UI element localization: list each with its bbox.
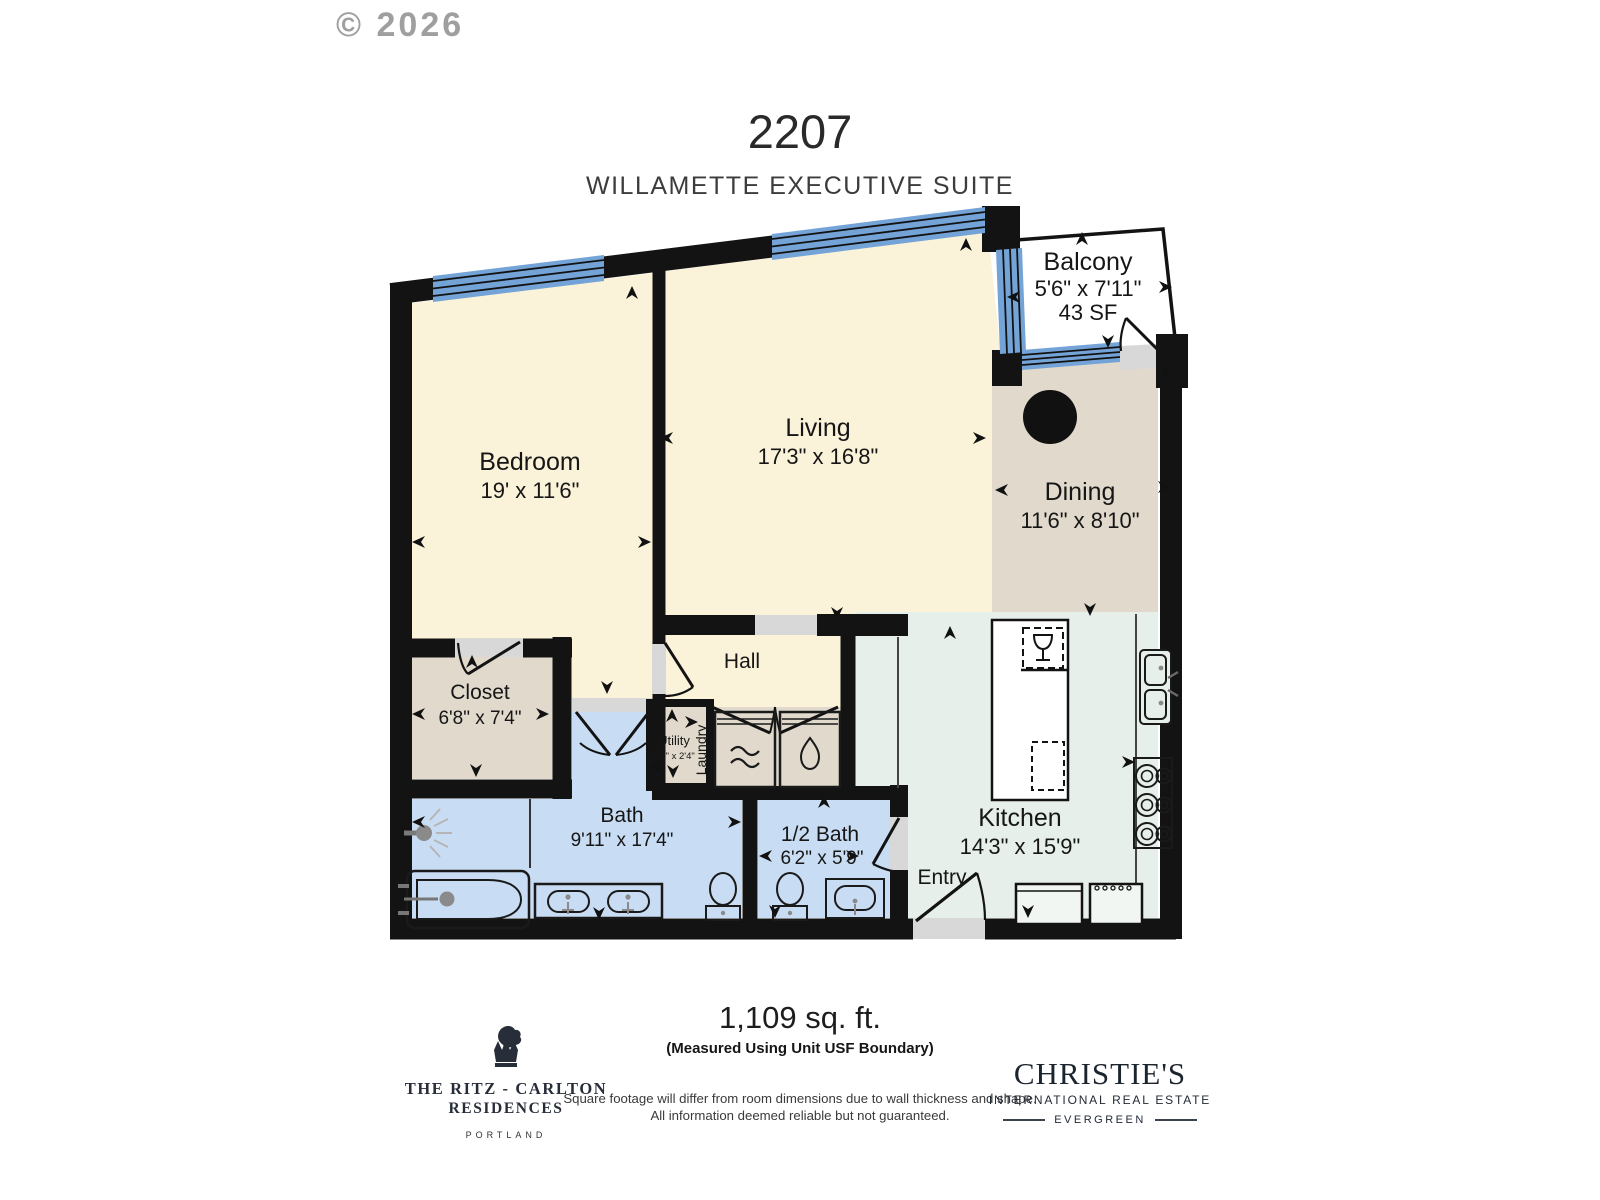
dining-dims: 11'6" x 8'10"	[1020, 508, 1139, 533]
utility-dims: 3'1" x 2'4"	[653, 751, 695, 762]
kitchen-dims: 14'3" x 15'9"	[960, 834, 1081, 859]
half-bath-label: 1/2 Bath	[781, 823, 859, 846]
living-right-window	[996, 248, 1026, 354]
christies-logo: CHRISTIE'S INTERNATIONAL REAL ESTATE EVE…	[980, 1056, 1220, 1126]
bedroom-dims: 19' x 11'6"	[481, 478, 580, 503]
closet-label: Closet	[450, 681, 510, 704]
rule-right	[1155, 1119, 1197, 1121]
lion-crown-icon	[484, 1022, 528, 1070]
christies-division: INTERNATIONAL REAL ESTATE	[980, 1093, 1220, 1107]
kitchen-island	[992, 620, 1068, 800]
living-label: Living	[785, 414, 850, 442]
structural-column	[1023, 390, 1077, 444]
living-dims: 17'3" x 16'8"	[758, 444, 879, 469]
bath-label: Bath	[600, 804, 643, 827]
half-bath-dims: 6'2" x 5'9"	[780, 848, 863, 869]
christies-team-row: EVERGREEN	[980, 1114, 1220, 1126]
floorplan-page: © 2026 2207 WILLAMETTE EXECUTIVE SUITE	[0, 0, 1600, 1200]
hall-label: Hall	[724, 650, 760, 673]
kitchen-label: Kitchen	[978, 804, 1061, 832]
balcony-label: Balcony	[1044, 248, 1133, 276]
balcony-area: 43 SF	[1059, 300, 1118, 325]
refrigerator-icon	[1016, 884, 1082, 924]
measure-note: (Measured Using Unit USF Boundary)	[590, 1040, 1010, 1057]
balcony-dims: 5'6" x 7'11"	[1035, 276, 1142, 301]
bath-dims: 9'11" x 17'4"	[571, 830, 674, 851]
appliance-icon	[1090, 884, 1142, 924]
total-area: 1,109 sq. ft.	[640, 1000, 960, 1036]
closet-dims: 6'8" x 7'4"	[438, 708, 521, 729]
rule-left	[1003, 1119, 1045, 1121]
utility-label: Utility	[658, 733, 690, 748]
ritz-city: PORTLAND	[396, 1130, 616, 1140]
bedroom-label: Bedroom	[479, 448, 580, 476]
entry-label: Entry	[917, 866, 967, 889]
christies-brand: CHRISTIE'S	[980, 1056, 1220, 1092]
laundry-label: Laundry	[693, 725, 709, 776]
christies-team: EVERGREEN	[1054, 1114, 1146, 1126]
dining-label: Dining	[1045, 478, 1116, 506]
